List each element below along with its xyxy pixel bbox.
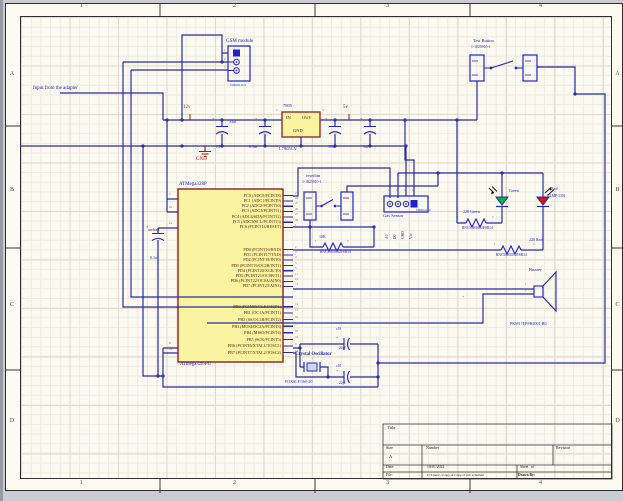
frame-ticks	[5, 3, 623, 493]
schematic-editor-window: { "frame":{"cols":["1","2","3","4"],"row…	[0, 0, 623, 501]
mcu-portc-pin-names: PC0 (ADC0/PCINT8)PC1 (ADC1/PCINT9)PC2 (A…	[180, 194, 281, 229]
test-button-switch[interactable]	[470, 55, 537, 81]
mcu-portb-pin-numbers: 141516171819910	[295, 303, 305, 353]
resistor-220-green[interactable]	[466, 219, 486, 227]
frame-rows-right: ABCD	[612, 16, 623, 479]
schematic-canvas[interactable]	[0, 0, 623, 501]
mcu-portd-pin-names: PD0 (PCINT16/RXD)PD1 (PCINT17/TXD)PD2 (P…	[180, 248, 281, 289]
gas-sensor-connector[interactable]	[384, 196, 428, 212]
resistor-220-red[interactable]	[501, 246, 521, 254]
mcu-portd-pin-numbers: 23456111213	[295, 246, 305, 287]
reset-button-switch[interactable]	[304, 192, 353, 220]
mcu-portc-pin-numbers: 2324252627281	[295, 192, 305, 227]
buzzer-speaker[interactable]	[534, 272, 556, 311]
regulator-7805-body[interactable]	[282, 112, 320, 137]
frame-columns-top: 1234	[5, 3, 617, 15]
title-block-lines	[383, 424, 612, 479]
gsm-connector[interactable]	[228, 46, 250, 81]
mcu-portb-pin-names: PB0 (PCINT0/CLKO/ICP1)PB1 (OC1A/PCINT1)P…	[180, 305, 281, 355]
wire-net[interactable]	[20, 35, 605, 387]
crystal-oscillator-symbol[interactable]	[304, 362, 320, 372]
green-led[interactable]	[489, 187, 508, 207]
gnd-symbol[interactable]	[199, 146, 211, 157]
frame-columns-bottom: 1234	[5, 480, 617, 492]
red-led[interactable]	[537, 188, 554, 207]
frame-rows-left: ABCD	[5, 16, 19, 479]
